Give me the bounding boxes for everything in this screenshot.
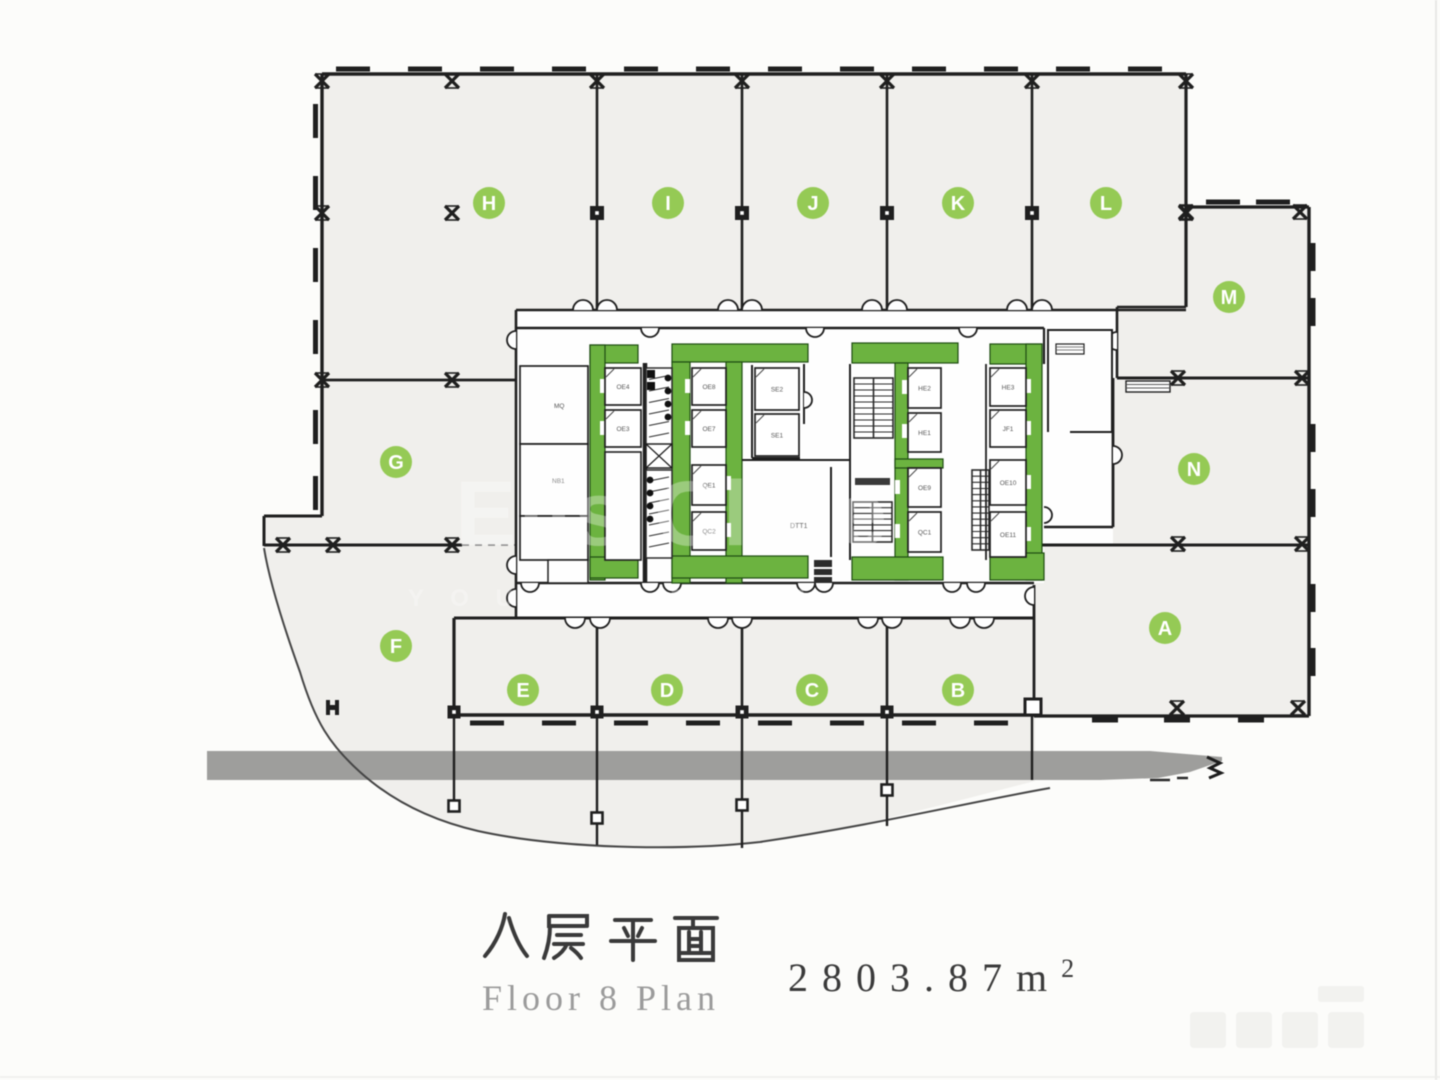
svg-text:OE3: OE3	[616, 426, 629, 433]
svg-text:N: N	[1187, 459, 1201, 481]
svg-text:OE10: OE10	[1000, 480, 1017, 487]
svg-text:SE2: SE2	[771, 387, 784, 394]
svg-text:JF1: JF1	[1003, 426, 1014, 433]
svg-text:J: J	[807, 193, 818, 215]
svg-text:K: K	[951, 193, 966, 215]
svg-text:2803.87m2: 2803.87m2	[788, 954, 1088, 1000]
svg-text:OE8: OE8	[702, 384, 715, 391]
svg-text:OE9: OE9	[918, 485, 931, 492]
svg-text:Floor 8 Plan: Floor 8 Plan	[482, 978, 720, 1018]
svg-text:HE2: HE2	[918, 386, 931, 393]
svg-text:G: G	[388, 452, 404, 474]
svg-text:B: B	[951, 680, 965, 702]
svg-text:Elis Cline: Elis Cline	[455, 463, 889, 565]
svg-text:E: E	[516, 680, 529, 702]
svg-text:L: L	[1100, 193, 1112, 215]
svg-text:QC1: QC1	[918, 530, 932, 537]
svg-text:I: I	[665, 193, 671, 215]
svg-text:D: D	[660, 680, 674, 702]
svg-text:SE1: SE1	[771, 433, 784, 440]
svg-text:HE1: HE1	[918, 430, 931, 437]
svg-text:Y O U R O F F I C E: Y O U R O F F I C E	[408, 585, 815, 612]
svg-text:HE3: HE3	[1002, 385, 1015, 392]
svg-text:H: H	[482, 193, 496, 215]
svg-text:MQ: MQ	[554, 403, 564, 410]
svg-text:OE4: OE4	[616, 384, 629, 391]
svg-text:C: C	[805, 680, 819, 702]
svg-text:OE11: OE11	[1000, 532, 1017, 539]
svg-text:OE7: OE7	[702, 426, 715, 433]
svg-text:A: A	[1158, 618, 1172, 640]
svg-text:M: M	[1221, 287, 1238, 309]
svg-text:F: F	[390, 636, 402, 658]
